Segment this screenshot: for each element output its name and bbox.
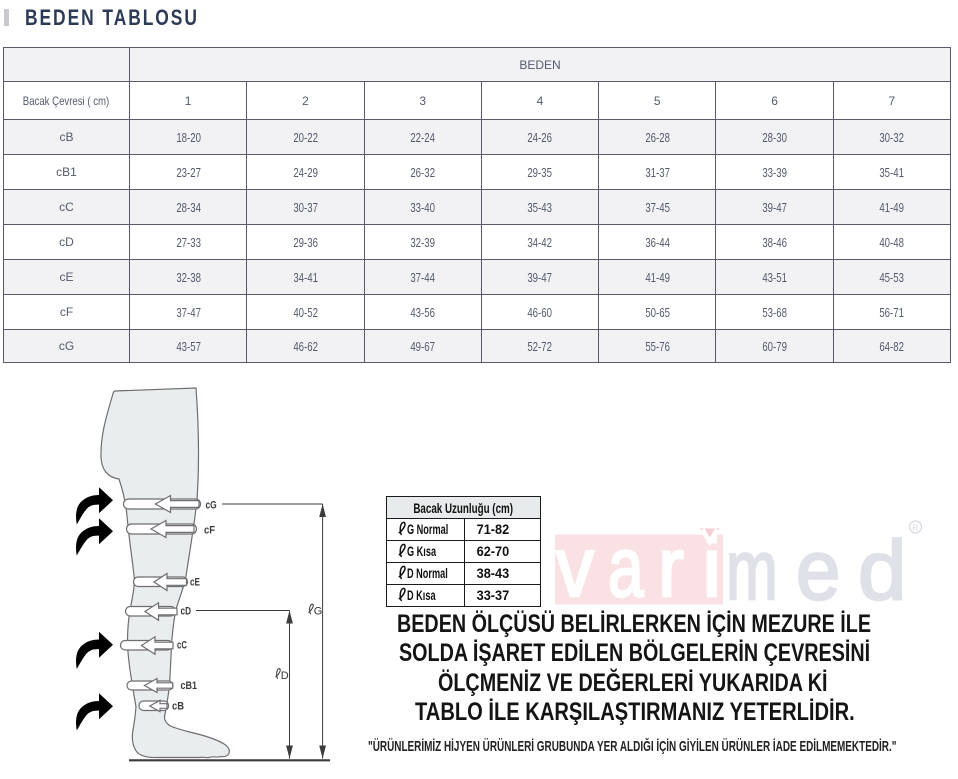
- svg-text:cD: cD: [181, 606, 192, 618]
- svg-text:a: a: [608, 519, 644, 614]
- svg-text:m: m: [726, 523, 778, 617]
- svg-text:cB1: cB1: [181, 680, 198, 692]
- svg-text:D: D: [281, 670, 289, 682]
- svg-text:e: e: [796, 524, 840, 617]
- svg-text:G: G: [314, 606, 323, 618]
- svg-text:r: r: [658, 521, 684, 615]
- svg-text:cG: cG: [206, 500, 217, 512]
- svg-text:cB: cB: [172, 701, 184, 713]
- svg-text:cE: cE: [190, 577, 200, 589]
- svg-text:cC: cC: [177, 640, 187, 652]
- svg-text:v: v: [556, 520, 594, 614]
- svg-text:d: d: [858, 524, 907, 618]
- svg-text:cF: cF: [204, 525, 215, 537]
- svg-text:R: R: [912, 523, 918, 533]
